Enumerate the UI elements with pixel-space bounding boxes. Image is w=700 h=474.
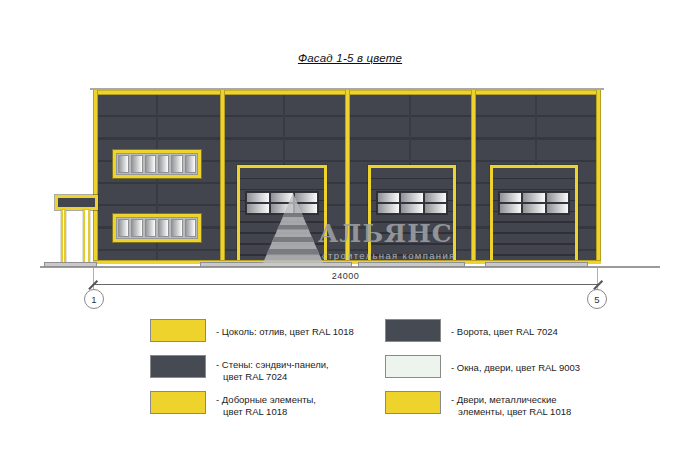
window-pane [185,155,196,173]
window-band-upper [112,149,202,179]
legend-swatch [385,391,441,414]
door-glass-pane [295,193,317,202]
window-pane [171,219,182,237]
garage-door-2 [368,165,456,263]
legend-label-line: цвет RAL 7024 [223,371,391,383]
legend-swatch [385,319,441,342]
legend-swatch [385,355,441,378]
column-post [471,90,476,263]
legend-label-line: - Доборные элементы, [216,394,391,406]
canopy-post-right [83,210,90,263]
door-glass-pane [378,204,399,213]
door-glass-pane [523,204,544,213]
door-glass-pane [247,204,269,213]
facade-title: Фасад 1-5 в цвете [298,52,402,64]
window-frame [116,217,198,239]
door-glass-pane [378,193,399,202]
window-pane [145,155,156,173]
drawing-sheet: Фасад 1-5 в цвете [0,0,700,474]
door-glass-pane [523,193,544,202]
window-pane [118,155,129,173]
legend-label-line: - Цоколь: отлив, цвет RAL 1018 [216,326,391,338]
door-glass-pane [547,193,568,202]
canopy-post-left [61,210,66,263]
legend-label-line: цвет RAL 1018 [223,406,391,418]
window-pane [145,219,156,237]
window-pane [158,155,169,173]
window-pane [158,219,169,237]
door-glass-pane [271,204,293,213]
window-pane [171,155,182,173]
window-band-lower [112,213,202,243]
door-glass-pane [425,193,446,202]
legend-swatch [150,355,206,378]
door-glass-pane [401,204,422,213]
legend-label-line: - Двери, металлические [451,394,636,406]
canopy-apron [44,262,97,267]
garage-door-3 [490,165,578,263]
column-post [596,90,601,263]
axis-marker-5: 5 [587,289,607,309]
garage-door-1 [237,165,327,263]
dimension-line [93,284,598,285]
door-glazing [376,191,448,215]
column-post [220,90,225,263]
legend-label-line: - Ворота, цвет RAL 7024 [451,326,636,338]
window-pane [131,155,142,173]
legend-swatch [150,391,206,414]
door-glass-pane [500,204,521,213]
door-apron [358,262,465,267]
window-pane [118,219,129,237]
door-glass-pane [401,193,422,202]
door-glass-pane [547,204,568,213]
door-glass-pane [500,193,521,202]
window-pane [185,219,196,237]
legend-label-line: элементы, цвет RAL 1018 [458,406,636,418]
door-glazing [245,191,319,215]
legend-label: - Ворота, цвет RAL 7024 [451,326,636,338]
entrance-canopy-board [55,195,98,210]
legend-label: - Цоколь: отлив, цвет RAL 1018 [216,326,391,338]
door-glass-pane [295,204,317,213]
legend-label-line: - Окна, двери, цвет RAL 9003 [451,362,636,374]
legend-label: - Двери, металлические элементы, цвет RA… [451,394,636,417]
door-apron [485,262,588,267]
legend-swatch [150,319,206,342]
axis-marker-1: 1 [84,289,104,309]
legend-label: - Окна, двери, цвет RAL 9003 [451,362,636,374]
legend-label: - Стены: сэндвич-панели, цвет RAL 7024 [216,359,391,382]
door-apron [200,262,352,267]
door-glass-pane [271,193,293,202]
column-post [93,90,98,263]
window-pane [131,219,142,237]
door-glass-pane [425,204,446,213]
window-frame [116,153,198,175]
dimension-label: 24000 [93,271,598,281]
legend-label-line: - Стены: сэндвич-панели, [216,359,391,371]
door-glazing [498,191,570,215]
legend-label: - Доборные элементы, цвет RAL 1018 [216,394,391,417]
column-post [345,90,350,263]
door-glass-pane [247,193,269,202]
title-row: Фасад 1-5 в цвете [0,48,700,66]
